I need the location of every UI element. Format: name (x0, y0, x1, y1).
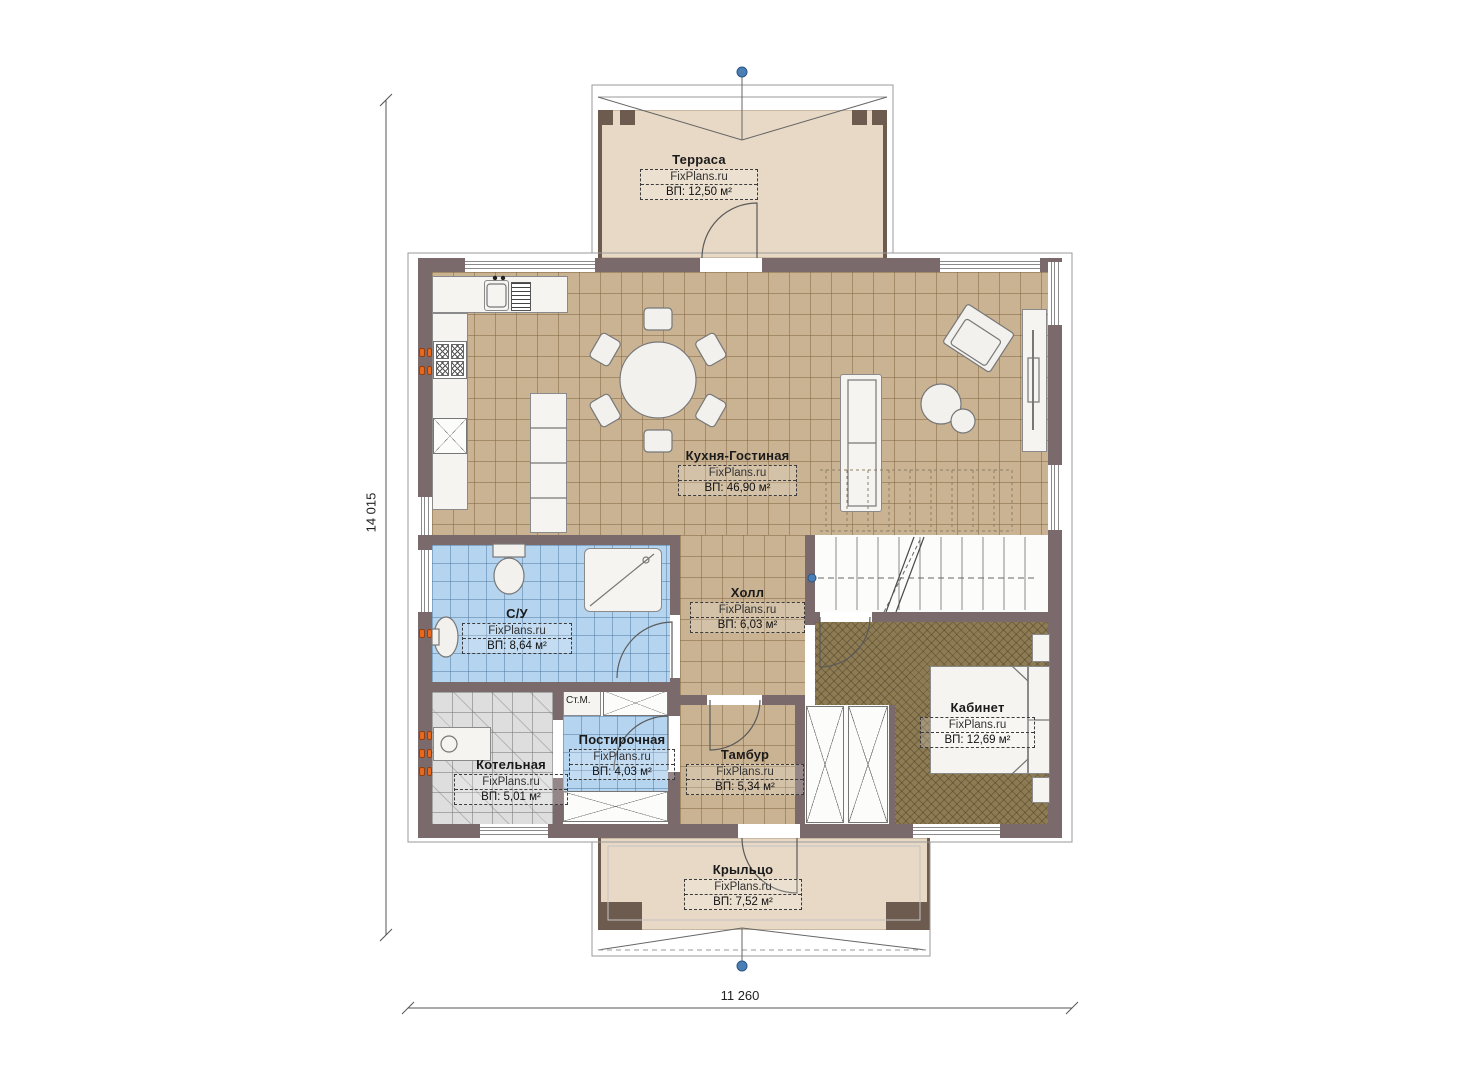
area-text: ВП: 8,64 м² (463, 639, 571, 653)
floor-plan: Терраса FixPlans.ru ВП: 12,50 м² Кухня-Г… (0, 0, 1474, 1080)
room-label-vestibule: Тамбур FixPlans.ru ВП: 5,34 м² (686, 747, 804, 795)
sink-faucet-dots (493, 276, 505, 280)
room-label-hall: Холл FixPlans.ru ВП: 6,03 м² (690, 585, 805, 633)
room-info-box: FixPlans.ru ВП: 12,50 м² (640, 169, 758, 200)
room-info-box: FixPlans.ru ВП: 5,34 м² (686, 764, 804, 795)
toilet-tank (493, 544, 525, 557)
room-label-boiler: Котельная FixPlans.ru ВП: 5,01 м² (454, 757, 568, 805)
brand-text: FixPlans.ru (570, 750, 674, 765)
armchair (943, 304, 1015, 373)
brand-text: FixPlans.ru (685, 880, 801, 895)
room-name: Тамбур (686, 747, 804, 762)
toilet-bowl (494, 558, 524, 594)
sink-tap (432, 629, 439, 645)
area-text: ВП: 46,90 м² (679, 481, 796, 495)
room-label-office: Кабинет FixPlans.ru ВП: 12,69 м² (920, 700, 1035, 748)
room-info-box: FixPlans.ru ВП: 8,64 м² (462, 623, 572, 654)
staircase (818, 470, 1034, 612)
brand-text: FixPlans.ru (691, 603, 804, 618)
brand-text: FixPlans.ru (679, 466, 796, 481)
room-info-box: FixPlans.ru ВП: 5,01 м² (454, 774, 568, 805)
room-name: Крыльцо (684, 862, 802, 877)
dining-table (620, 342, 696, 418)
room-name: С/У (462, 606, 572, 621)
brand-text: FixPlans.ru (921, 718, 1034, 733)
room-name: Холл (690, 585, 805, 600)
area-text: ВП: 5,34 м² (687, 780, 803, 794)
room-name: Котельная (454, 757, 568, 772)
room-info-box: FixPlans.ru ВП: 12,69 м² (920, 717, 1035, 748)
bathroom-door (617, 622, 672, 678)
room-name: Кухня-Гостиная (660, 448, 815, 463)
room-info-box: FixPlans.ru ВП: 4,03 м² (569, 749, 675, 780)
area-text: ВП: 4,03 м² (570, 765, 674, 779)
area-text: ВП: 5,01 м² (455, 790, 567, 804)
room-label-terrace: Терраса FixPlans.ru ВП: 12,50 м² (640, 152, 758, 200)
office-door (820, 617, 870, 667)
room-info-box: FixPlans.ru ВП: 6,03 м² (690, 602, 805, 633)
brand-text: FixPlans.ru (463, 624, 571, 639)
terrace-door (702, 203, 757, 258)
room-info-box: FixPlans.ru ВП: 7,52 м² (684, 879, 802, 910)
coffee-table-small (951, 409, 975, 433)
area-text: ВП: 12,69 м² (921, 733, 1034, 747)
axis-markers (737, 67, 816, 971)
dimension-bottom-label: 11 260 (700, 988, 780, 1003)
room-label-porch: Крыльцо FixPlans.ru ВП: 7,52 м² (684, 862, 802, 910)
area-text: ВП: 12,50 м² (641, 185, 757, 199)
brand-text: FixPlans.ru (687, 765, 803, 780)
room-name: Терраса (640, 152, 758, 167)
room-name: Кабинет (920, 700, 1035, 715)
brand-text: FixPlans.ru (455, 775, 567, 790)
area-text: ВП: 7,52 м² (685, 895, 801, 909)
upper-flight-dashed (820, 470, 1012, 531)
boiler-dial (441, 736, 457, 752)
room-name: Постирочная (563, 732, 681, 747)
room-label-laundry: Постирочная FixPlans.ru ВП: 4,03 м² (563, 732, 681, 780)
dimension-left-label: 14 015 (364, 490, 379, 536)
room-info-box: FixPlans.ru ВП: 46,90 м² (678, 465, 797, 496)
area-text: ВП: 6,03 м² (691, 618, 804, 632)
room-label-kitchen-living: Кухня-Гостиная FixPlans.ru ВП: 46,90 м² (660, 448, 815, 496)
vestibule-door (710, 700, 760, 750)
room-label-bathroom: С/У FixPlans.ru ВП: 8,64 м² (462, 606, 572, 654)
washing-machine-label: Ст.М. (566, 695, 591, 706)
brand-text: FixPlans.ru (641, 170, 757, 185)
